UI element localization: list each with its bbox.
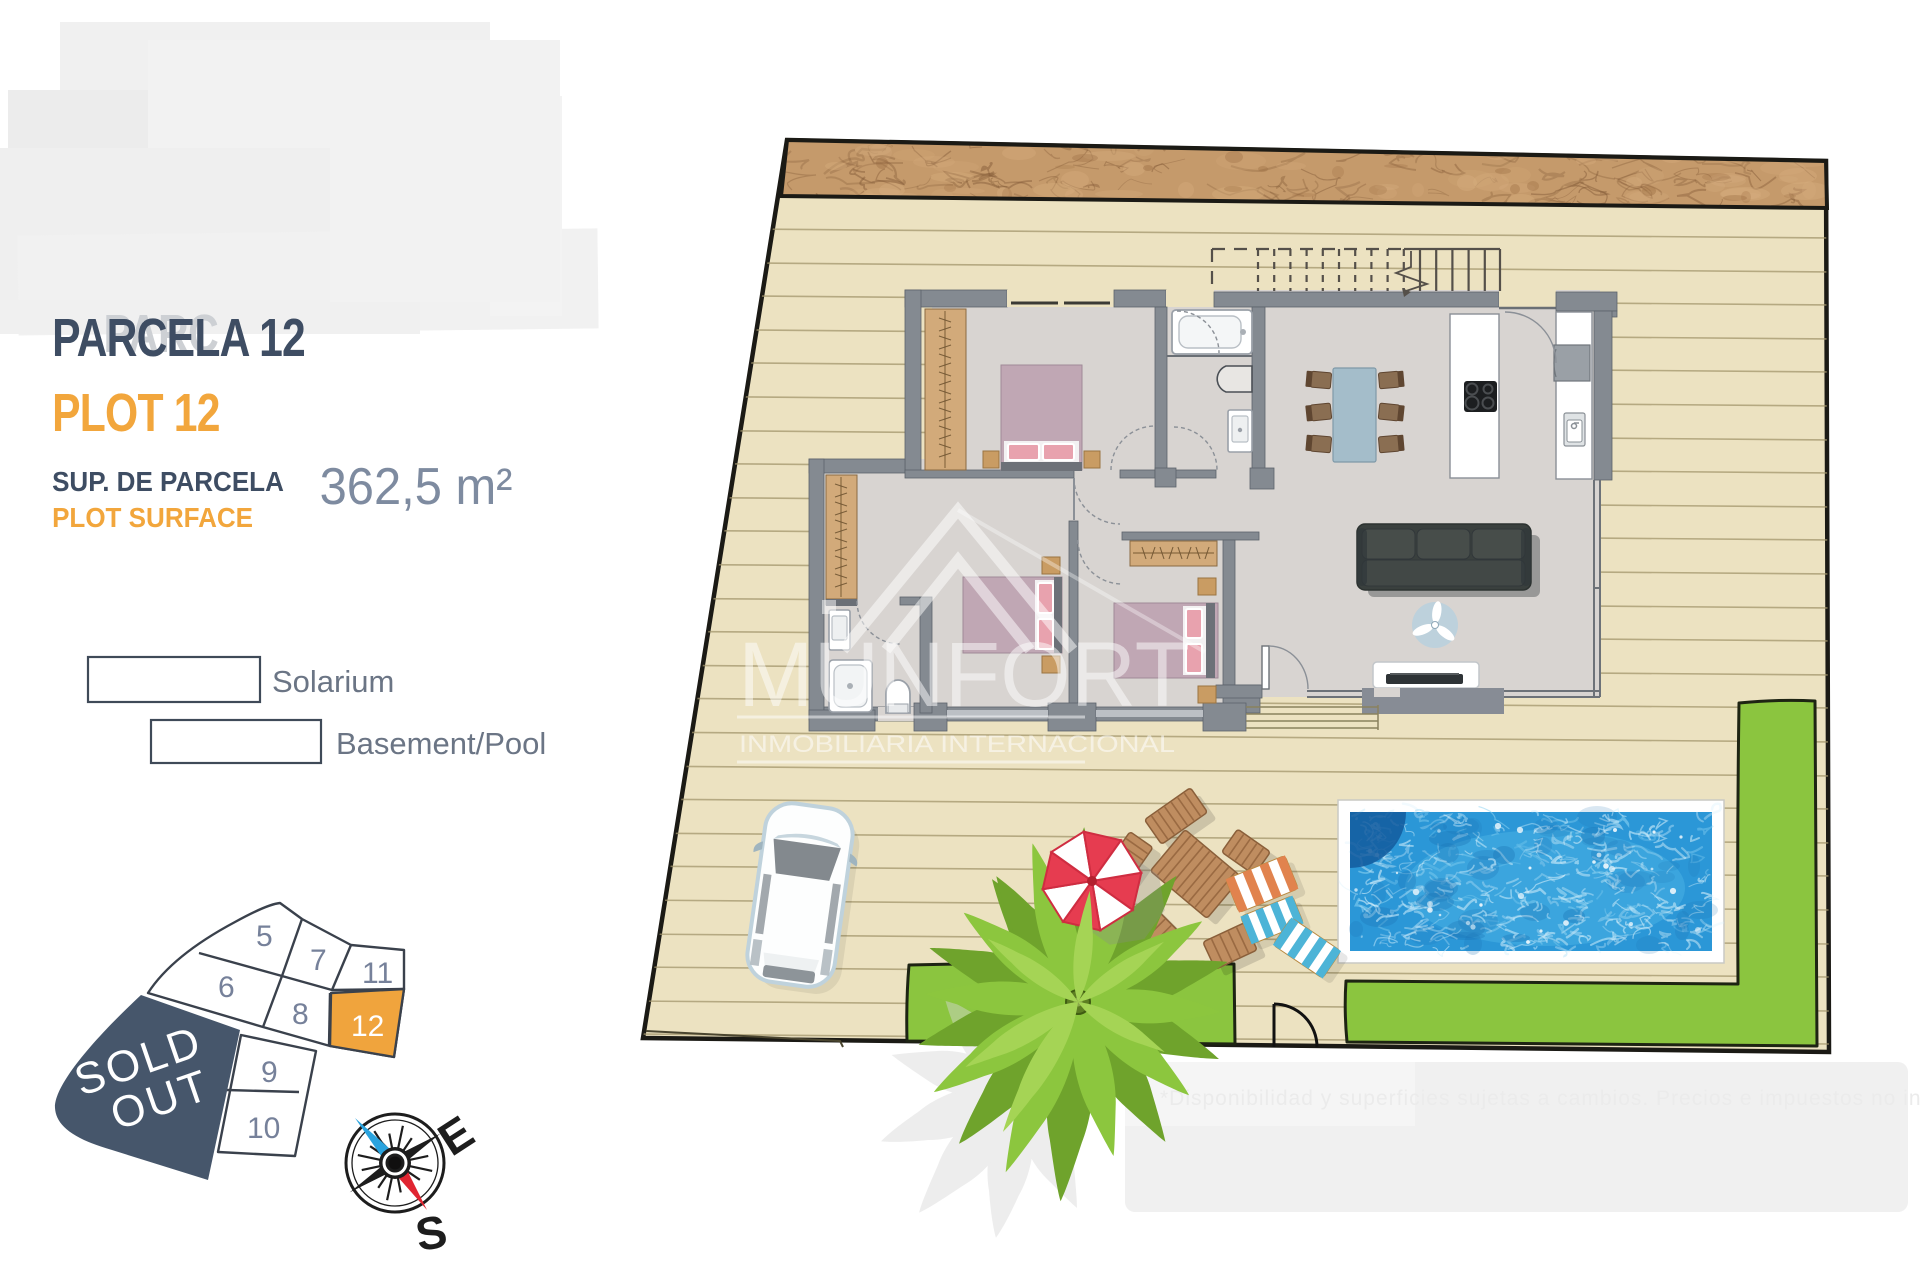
- svg-text:5: 5: [256, 920, 273, 953]
- svg-text:*Disponibilidad y superficies: *Disponibilidad y superficies sujetas a …: [1160, 1087, 1920, 1110]
- svg-text:12: 12: [351, 1010, 384, 1043]
- svg-text:7: 7: [310, 944, 327, 977]
- svg-text:9: 9: [261, 1056, 278, 1089]
- svg-text:10: 10: [247, 1112, 280, 1145]
- svg-text:362,5 m²: 362,5 m²: [320, 457, 513, 516]
- svg-text:PLOT 12: PLOT 12: [52, 383, 220, 443]
- svg-text:PARCELA 12: PARCELA 12: [52, 308, 305, 368]
- svg-text:6: 6: [218, 971, 235, 1004]
- svg-text:8: 8: [292, 998, 309, 1031]
- svg-text:INMOBILIARIA INTERNACIONAL: INMOBILIARIA INTERNACIONAL: [739, 731, 1175, 758]
- svg-text:PLOT SURFACE: PLOT SURFACE: [52, 502, 253, 533]
- svg-text:11: 11: [362, 957, 393, 990]
- svg-text:Basement/Pool: Basement/Pool: [336, 726, 546, 761]
- svg-text:Solarium: Solarium: [272, 664, 394, 699]
- svg-text:MUNFORT: MUNFORT: [738, 624, 1190, 726]
- svg-text:SUP. DE PARCELA: SUP. DE PARCELA: [52, 466, 284, 497]
